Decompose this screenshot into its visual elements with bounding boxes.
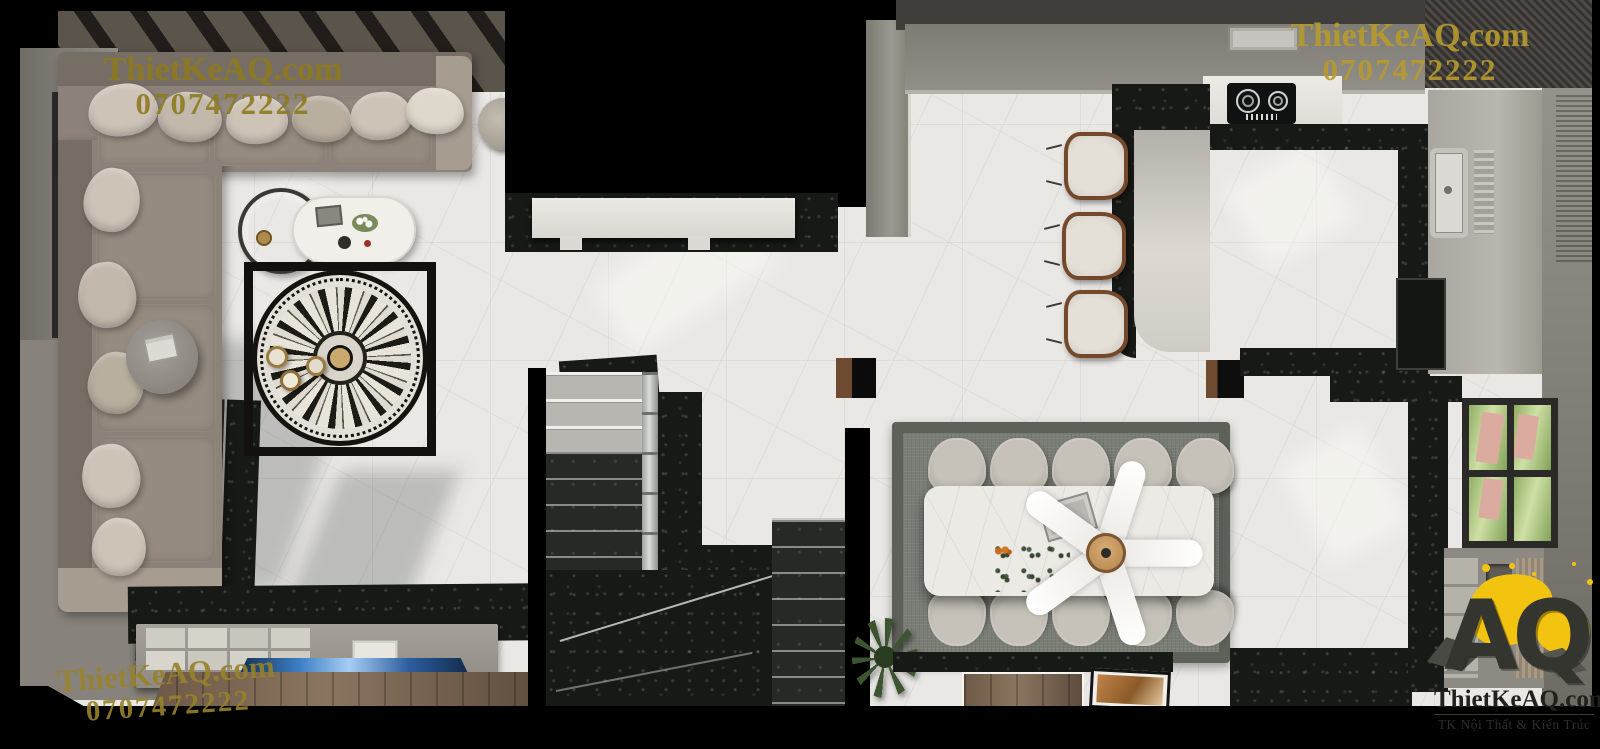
tray-cell <box>146 628 185 648</box>
house-view <box>1478 477 1503 519</box>
ceiling-void <box>505 0 868 207</box>
bar-stool <box>1062 212 1126 280</box>
tray-flowers <box>352 214 378 232</box>
tray-cell <box>230 628 269 648</box>
bar-stool <box>1064 132 1128 200</box>
floorplan-render: ThietKeAQ.com 0707472222 ThietKeAQ.com 0… <box>0 0 1600 749</box>
watermark-top-left: ThietKeAQ.com 0707472222 <box>48 52 398 121</box>
stair-flight-down-gloss <box>772 430 845 520</box>
window-pane <box>1469 405 1507 470</box>
tray-bowl <box>338 236 351 249</box>
window-right <box>1462 398 1558 548</box>
kitchen-band-h <box>1203 124 1428 150</box>
aq-logo: AQ ThietKeAQ.com TK Nội Thất & Kiến Trúc <box>1416 578 1600 746</box>
column-stub <box>836 358 876 398</box>
tray-cell <box>188 628 227 648</box>
watermark-phone: 0707472222 <box>48 88 398 121</box>
frame-edge-top <box>0 0 505 11</box>
coffee-table-kettle <box>258 232 270 244</box>
stair-glass-rail <box>642 372 658 594</box>
house-view <box>1476 412 1505 465</box>
frame-edge-left <box>0 0 20 749</box>
artwork-image <box>1096 674 1163 705</box>
stair-flight-up-dark <box>546 452 642 570</box>
bar-counter <box>1134 130 1210 352</box>
watermark-site: ThietKeAQ.com <box>48 52 398 88</box>
built-in-oven-top <box>1396 278 1446 370</box>
pendant-lamp <box>266 346 288 368</box>
tray-photo-frame <box>315 205 343 228</box>
window-pane <box>1514 477 1552 542</box>
bar-stool <box>1064 290 1128 358</box>
console-table-leg <box>688 236 710 250</box>
dining-floor-band <box>893 652 1173 672</box>
stair-flight-down <box>772 520 845 715</box>
stair-flight-up-light <box>546 372 642 456</box>
coffee-table-oval-tray <box>292 196 416 264</box>
cooktop-burner <box>1268 91 1288 111</box>
cooktop-burner <box>1236 89 1260 113</box>
tray-fruit <box>364 240 371 247</box>
watermark-phone: 0707472222 <box>1230 54 1590 87</box>
pendant-lamp <box>280 370 301 391</box>
house-view <box>1514 414 1539 460</box>
mandala-center <box>327 345 353 371</box>
stair-wall-strip <box>528 368 546 715</box>
sink-faucet <box>1444 186 1452 194</box>
column-stub <box>1206 360 1244 398</box>
logo-site-text: ThietKeAQ.com <box>1434 686 1594 714</box>
logo-paint-drip <box>1482 564 1490 572</box>
bottom-right-floor-band <box>1230 648 1412 706</box>
window-pane <box>1469 477 1507 542</box>
watermark-top-right: ThietKeAQ.com 0707472222 <box>1230 18 1590 87</box>
logo-monogram: AQ <box>1444 580 1588 692</box>
wood-floor-inset <box>962 672 1084 708</box>
right-wall-blinds <box>1556 92 1594 262</box>
watermark-site: ThietKeAQ.com <box>1230 18 1590 54</box>
logo-tagline: TK Nội Thất & Kiến Trúc <box>1434 714 1594 733</box>
window-pane <box>1514 405 1552 470</box>
console-table-leg <box>560 236 582 250</box>
dish-rack <box>1474 150 1494 234</box>
tray-cell <box>271 628 310 648</box>
cooktop-grill <box>1246 114 1277 120</box>
pendant-lamp <box>306 356 326 376</box>
console-table <box>532 198 795 238</box>
stair-right-strip <box>845 428 870 749</box>
